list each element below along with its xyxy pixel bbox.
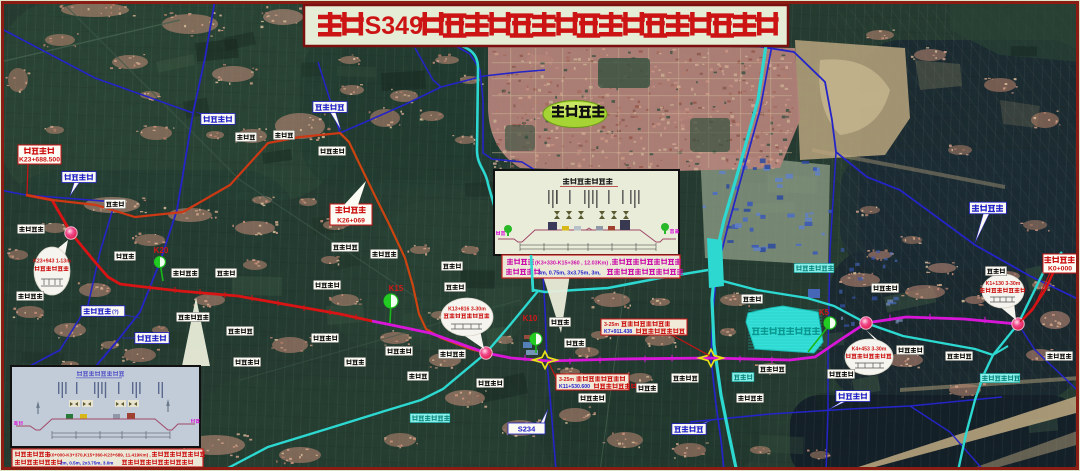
svg-text:K23+688.500: K23+688.500 xyxy=(19,157,60,164)
svg-text:K5: K5 xyxy=(819,308,830,317)
svg-text:K0+000: K0+000 xyxy=(1048,266,1072,273)
svg-text:S349: S349 xyxy=(365,12,423,40)
svg-text:K13+816 3-30m: K13+816 3-30m xyxy=(448,306,486,312)
svg-text:2m, 0.5m, 2x3.75m, 3.0m: 2m, 0.5m, 2x3.75m, 3.0m xyxy=(60,461,113,466)
svg-text:K11+530.600: K11+530.600 xyxy=(559,384,590,390)
svg-text:3-25m: 3-25m xyxy=(559,377,574,383)
svg-text:K20: K20 xyxy=(154,246,169,255)
svg-text:K10: K10 xyxy=(523,314,538,323)
svg-text:3-25m: 3-25m xyxy=(604,322,619,328)
svg-text:K26+069: K26+069 xyxy=(337,218,365,225)
svg-text:K4+453 3-30m: K4+453 3-30m xyxy=(852,347,887,353)
svg-text:K23+943 1-13m: K23+943 1-13m xyxy=(33,259,71,265)
svg-text:K7+911.438: K7+911.438 xyxy=(604,329,632,335)
svg-text:K1+130 3-30m: K1+130 3-30m xyxy=(986,281,1021,287)
svg-text:(K3+330-K15+360 , 12.03Km) ,: (K3+330-K15+360 , 12.03Km) , xyxy=(535,261,612,267)
svg-text:(K0+000-K3+370,K15+360-K23+689: (K0+000-K3+370,K15+360-K23+689, 11.419Km… xyxy=(47,453,151,458)
svg-text:S234: S234 xyxy=(518,425,536,434)
svg-text:3m, 0.75m, 3x3.75m, 3m,: 3m, 0.75m, 3x3.75m, 3m, xyxy=(538,271,601,277)
svg-text:K15: K15 xyxy=(389,284,404,293)
svg-text:(?): (?) xyxy=(112,310,119,316)
